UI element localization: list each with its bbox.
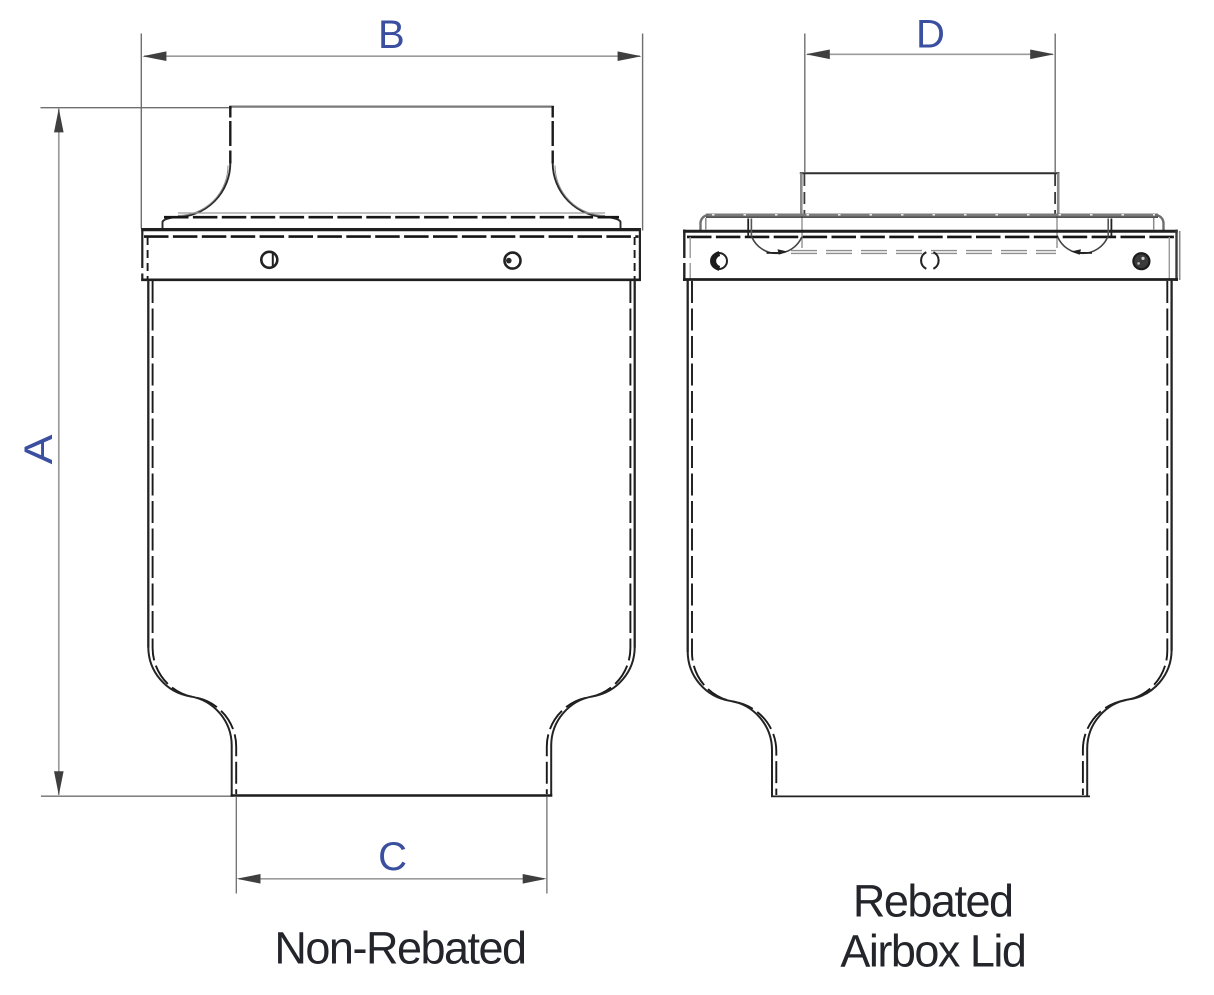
- svg-text:B: B: [378, 13, 405, 57]
- svg-text:C: C: [378, 835, 407, 879]
- svg-text:Non-Rebated: Non-Rebated: [274, 923, 525, 974]
- svg-text:D: D: [916, 13, 945, 57]
- svg-text:Rebated: Rebated: [853, 876, 1013, 927]
- svg-text:A: A: [16, 434, 60, 465]
- svg-text:Airbox Lid: Airbox Lid: [840, 926, 1025, 977]
